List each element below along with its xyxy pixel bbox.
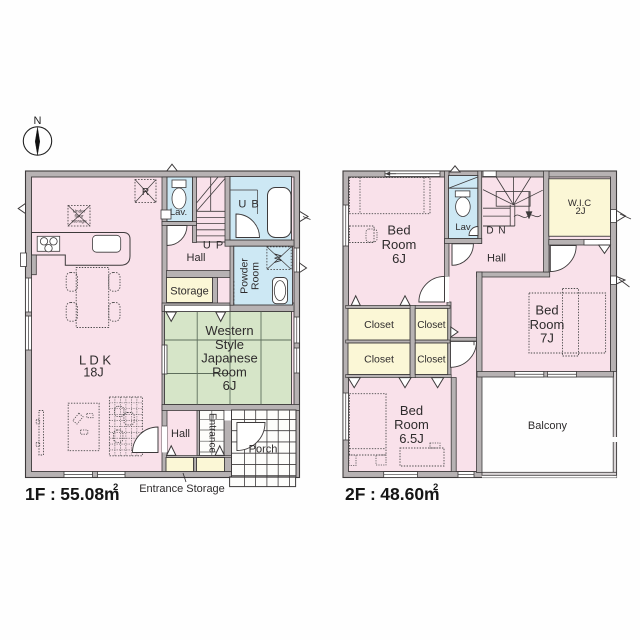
svg-text:W: W [274, 253, 285, 263]
svg-text:Hall: Hall [187, 252, 206, 264]
svg-text:N: N [34, 115, 42, 127]
svg-text:R: R [142, 187, 149, 198]
svg-text:2F:48.60m: 2F:48.60m [345, 484, 440, 504]
svg-text:Porch: Porch [249, 444, 278, 456]
svg-text:6J: 6J [392, 251, 406, 266]
svg-text:Style: Style [215, 337, 244, 352]
svg-text:Hall: Hall [487, 253, 506, 265]
svg-text:Japanese: Japanese [201, 351, 257, 366]
svg-text:Bed: Bed [535, 303, 558, 318]
svg-text:Closet: Closet [417, 320, 446, 331]
svg-text:Bed: Bed [387, 223, 410, 238]
svg-text:2: 2 [433, 482, 438, 493]
svg-text:Entrance Storage: Entrance Storage [139, 483, 225, 495]
svg-text:6.5J: 6.5J [399, 431, 424, 446]
svg-text:1F:55.08m: 1F:55.08m [25, 484, 120, 504]
svg-text:2: 2 [113, 482, 118, 493]
svg-text:Storage: Storage [170, 286, 209, 298]
svg-text:Lav.: Lav. [170, 207, 187, 218]
svg-text:Western: Western [205, 323, 253, 338]
svg-text:2J: 2J [575, 206, 585, 217]
svg-text:Bed: Bed [400, 403, 423, 418]
svg-text:Closet: Closet [364, 353, 394, 365]
svg-text:storage: storage [71, 219, 87, 224]
svg-text:7J: 7J [540, 330, 554, 345]
svg-text:Entrance: Entrance [206, 413, 217, 453]
svg-text:Hall: Hall [171, 428, 190, 440]
svg-text:Room: Room [212, 364, 247, 379]
svg-text:Room: Room [394, 417, 429, 432]
svg-text:Closet: Closet [364, 319, 394, 331]
svg-text:Balcony: Balcony [528, 420, 568, 432]
svg-text:18J: 18J [83, 366, 103, 380]
svg-text:Closet: Closet [417, 354, 446, 365]
svg-text:Room: Room [250, 262, 262, 290]
svg-text:Lav: Lav [455, 222, 471, 233]
svg-text:Room: Room [382, 237, 417, 252]
svg-text:U P: U P [203, 240, 224, 252]
svg-text:6J: 6J [223, 378, 237, 393]
svg-text:D N: D N [486, 226, 506, 237]
svg-text:U B: U B [238, 199, 259, 211]
